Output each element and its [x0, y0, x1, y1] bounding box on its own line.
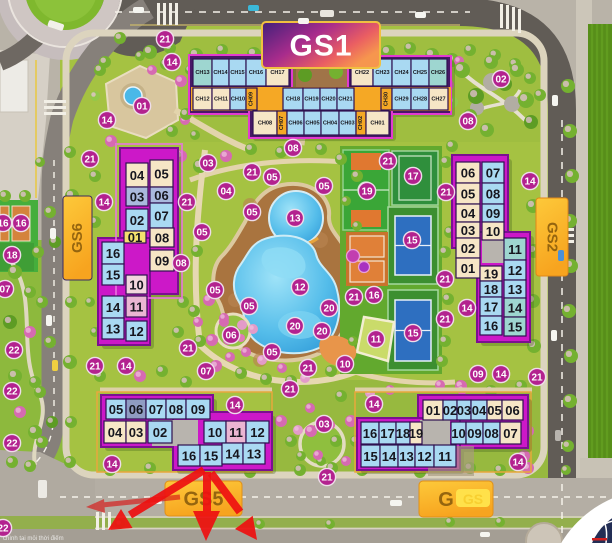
svg-text:12: 12	[250, 425, 264, 440]
svg-text:04: 04	[130, 168, 145, 183]
svg-text:02: 02	[130, 213, 144, 228]
svg-text:CH30: CH30	[384, 92, 390, 106]
svg-text:15: 15	[106, 268, 120, 283]
svg-text:21: 21	[182, 343, 194, 354]
svg-text:14: 14	[461, 303, 473, 314]
svg-text:19: 19	[409, 426, 423, 441]
svg-text:20: 20	[323, 303, 335, 314]
svg-text:13: 13	[508, 282, 522, 297]
svg-text:05: 05	[246, 207, 258, 218]
svg-text:03: 03	[202, 158, 214, 169]
svg-text:19: 19	[484, 267, 498, 282]
svg-text:03: 03	[129, 425, 143, 440]
svg-text:21: 21	[321, 472, 333, 483]
svg-text:09: 09	[191, 402, 205, 417]
svg-text:06: 06	[154, 188, 168, 203]
svg-text:13: 13	[247, 447, 261, 462]
svg-text:CH12: CH12	[195, 97, 209, 103]
svg-text:CH21: CH21	[338, 97, 352, 103]
svg-text:11: 11	[229, 425, 243, 440]
svg-text:05: 05	[243, 301, 255, 312]
svg-text:CH27: CH27	[431, 97, 445, 103]
svg-text:CH07: CH07	[279, 116, 285, 130]
svg-text:02: 02	[495, 74, 507, 85]
svg-text:14: 14	[166, 57, 178, 68]
svg-text:06: 06	[505, 403, 519, 418]
svg-text:16: 16	[106, 246, 120, 261]
svg-text:GS2: GS2	[544, 222, 561, 252]
svg-text:CH02: CH02	[358, 116, 364, 130]
svg-text:22: 22	[6, 438, 18, 449]
svg-text:09: 09	[486, 206, 500, 221]
svg-text:03: 03	[318, 419, 330, 430]
svg-text:07: 07	[503, 426, 517, 441]
svg-text:07: 07	[486, 166, 500, 181]
svg-text:07: 07	[200, 366, 212, 377]
svg-text:CH24: CH24	[394, 70, 409, 76]
svg-text:21: 21	[302, 363, 314, 374]
svg-text:05: 05	[266, 347, 278, 358]
svg-text:04: 04	[461, 206, 476, 221]
svg-text:CH25: CH25	[413, 70, 427, 76]
svg-text:16: 16	[484, 319, 498, 334]
svg-text:06: 06	[129, 402, 143, 417]
svg-text:14: 14	[229, 400, 241, 411]
svg-text:CH29: CH29	[394, 97, 408, 103]
svg-text:02: 02	[461, 241, 475, 256]
svg-text:21: 21	[84, 154, 96, 165]
svg-text:CH19: CH19	[304, 97, 318, 103]
svg-text:17: 17	[407, 171, 419, 182]
svg-text:22: 22	[8, 345, 20, 356]
svg-text:22: 22	[6, 386, 18, 397]
svg-text:19: 19	[361, 186, 373, 197]
svg-text:21: 21	[348, 292, 360, 303]
svg-text:GS6: GS6	[69, 223, 86, 253]
svg-text:14: 14	[98, 197, 110, 208]
svg-text:12: 12	[294, 282, 306, 293]
svg-text:01: 01	[136, 101, 148, 112]
svg-text:20: 20	[316, 326, 328, 337]
svg-text:08: 08	[287, 143, 299, 154]
svg-text:20: 20	[289, 321, 301, 332]
svg-text:05: 05	[266, 172, 278, 183]
svg-text:13: 13	[106, 322, 120, 337]
svg-text:CH28: CH28	[413, 97, 427, 103]
svg-text:CH14: CH14	[213, 70, 228, 76]
svg-text:CH20: CH20	[321, 97, 335, 103]
svg-text:15: 15	[508, 320, 522, 335]
svg-text:21: 21	[440, 187, 452, 198]
svg-text:11: 11	[438, 449, 452, 464]
svg-text:03: 03	[457, 403, 471, 418]
svg-text:14: 14	[524, 176, 536, 187]
svg-text:05: 05	[318, 181, 330, 192]
svg-text:11: 11	[130, 300, 144, 315]
svg-text:12: 12	[129, 324, 143, 339]
svg-text:13: 13	[399, 449, 413, 464]
svg-text:05: 05	[196, 227, 208, 238]
svg-text:17: 17	[380, 426, 394, 441]
svg-text:02: 02	[153, 425, 167, 440]
svg-text:CH23: CH23	[375, 70, 389, 76]
svg-text:08: 08	[155, 231, 169, 246]
svg-text:10: 10	[486, 224, 500, 239]
svg-text:04: 04	[108, 425, 123, 440]
svg-text:15: 15	[406, 235, 418, 246]
svg-text:08: 08	[175, 258, 187, 269]
svg-text:01: 01	[461, 261, 475, 276]
svg-text:16: 16	[15, 218, 27, 229]
svg-text:10: 10	[208, 425, 222, 440]
svg-text:09: 09	[472, 369, 484, 380]
svg-text:12: 12	[417, 449, 431, 464]
svg-text:CH09: CH09	[249, 92, 255, 106]
svg-text:16: 16	[182, 449, 196, 464]
svg-text:CH06: CH06	[288, 121, 302, 127]
svg-text:CH08: CH08	[258, 121, 272, 127]
svg-text:14: 14	[101, 115, 113, 126]
svg-text:CH11: CH11	[214, 97, 228, 103]
svg-text:CH04: CH04	[323, 121, 338, 127]
svg-text:CH22: CH22	[355, 70, 369, 76]
svg-text:07: 07	[0, 284, 11, 295]
svg-text:01: 01	[128, 230, 142, 245]
svg-text:CH13: CH13	[195, 70, 209, 76]
svg-text:14: 14	[382, 449, 397, 464]
svg-text:CH17: CH17	[270, 70, 284, 76]
svg-text:14: 14	[508, 301, 523, 316]
svg-text:CH05: CH05	[305, 121, 319, 127]
svg-text:21: 21	[531, 372, 543, 383]
svg-text:chình tai mỏi thời điểm: chình tai mỏi thời điểm	[3, 535, 64, 542]
svg-text:08: 08	[169, 402, 183, 417]
svg-text:21: 21	[159, 34, 171, 45]
svg-text:04: 04	[220, 186, 232, 197]
svg-text:15: 15	[204, 449, 218, 464]
svg-text:16: 16	[0, 218, 9, 229]
svg-text:08: 08	[462, 116, 474, 127]
svg-text:09: 09	[155, 254, 169, 269]
svg-text:CH03: CH03	[340, 121, 354, 127]
svg-text:GS1: GS1	[289, 30, 352, 63]
svg-text:09: 09	[467, 426, 481, 441]
svg-text:13: 13	[289, 213, 301, 224]
svg-text:08: 08	[486, 187, 500, 202]
svg-text:05: 05	[209, 285, 221, 296]
svg-text:14: 14	[368, 399, 380, 410]
svg-text:16: 16	[368, 290, 380, 301]
svg-text:11: 11	[508, 242, 522, 257]
svg-text:GS: GS	[463, 491, 483, 507]
svg-text:21: 21	[439, 314, 451, 325]
svg-text:17: 17	[484, 300, 498, 315]
svg-text:18: 18	[6, 250, 18, 261]
svg-text:10: 10	[339, 359, 351, 370]
svg-text:12: 12	[508, 263, 522, 278]
svg-text:21: 21	[246, 167, 258, 178]
svg-text:CH18: CH18	[286, 97, 300, 103]
svg-text:06: 06	[461, 166, 475, 181]
svg-text:16: 16	[363, 426, 377, 441]
svg-text:22: 22	[0, 523, 9, 534]
svg-text:07: 07	[154, 209, 168, 224]
svg-text:21: 21	[181, 197, 193, 208]
svg-text:14: 14	[512, 457, 524, 468]
svg-text:10: 10	[451, 426, 465, 441]
svg-text:05: 05	[109, 402, 123, 417]
svg-text:15: 15	[407, 328, 419, 339]
svg-text:CH10: CH10	[231, 97, 245, 103]
svg-text:21: 21	[382, 156, 394, 167]
svg-text:03: 03	[130, 190, 144, 205]
svg-text:05: 05	[154, 167, 168, 182]
svg-text:05: 05	[461, 187, 475, 202]
svg-text:10: 10	[129, 278, 143, 293]
svg-text:21: 21	[439, 274, 451, 285]
svg-text:G: G	[438, 489, 454, 511]
svg-text:03: 03	[461, 223, 475, 238]
svg-text:14: 14	[106, 459, 118, 470]
svg-text:07: 07	[149, 402, 163, 417]
svg-text:04: 04	[472, 403, 487, 418]
svg-text:18: 18	[484, 282, 498, 297]
svg-text:14: 14	[495, 369, 507, 380]
svg-text:14: 14	[106, 300, 121, 315]
svg-text:02: 02	[443, 403, 457, 418]
svg-text:21: 21	[284, 384, 296, 395]
svg-text:15: 15	[363, 449, 377, 464]
svg-text:14: 14	[225, 447, 240, 462]
svg-text:CH01: CH01	[370, 121, 384, 127]
svg-text:01: 01	[426, 403, 440, 418]
svg-text:CH16: CH16	[249, 70, 263, 76]
svg-text:11: 11	[371, 334, 382, 345]
svg-text:06: 06	[225, 330, 237, 341]
svg-text:CH26: CH26	[431, 70, 445, 76]
svg-text:21: 21	[89, 361, 101, 372]
svg-text:CH15: CH15	[230, 70, 244, 76]
svg-text:14: 14	[120, 361, 132, 372]
svg-text:08: 08	[484, 426, 498, 441]
svg-text:05: 05	[487, 403, 501, 418]
